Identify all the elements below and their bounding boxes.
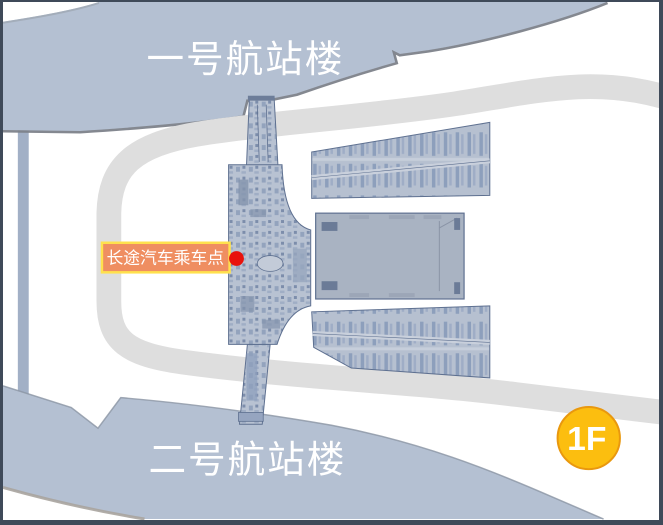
floor-badge[interactable]: 1F xyxy=(558,407,620,469)
floorplan-north-walkway xyxy=(246,96,278,168)
floorplan-middle-hall xyxy=(316,213,464,299)
map-canvas: 一号航站楼 二号航站楼 长途汽车乘车点 1F xyxy=(3,2,659,520)
terminal-2-label: 二号航站楼 xyxy=(148,439,346,481)
poi-location-dot-icon xyxy=(229,251,244,266)
terminal-1-label: 一号航站楼 xyxy=(147,38,345,80)
side-road-left xyxy=(18,126,29,420)
poi-label-text: 长途汽车乘车点 xyxy=(106,248,224,267)
floor-badge-label: 1F xyxy=(567,421,606,458)
airport-floor-map: 一号航站楼 二号航站楼 长途汽车乘车点 1F xyxy=(0,0,663,525)
poi-marker[interactable]: 长途汽车乘车点 xyxy=(102,243,244,273)
